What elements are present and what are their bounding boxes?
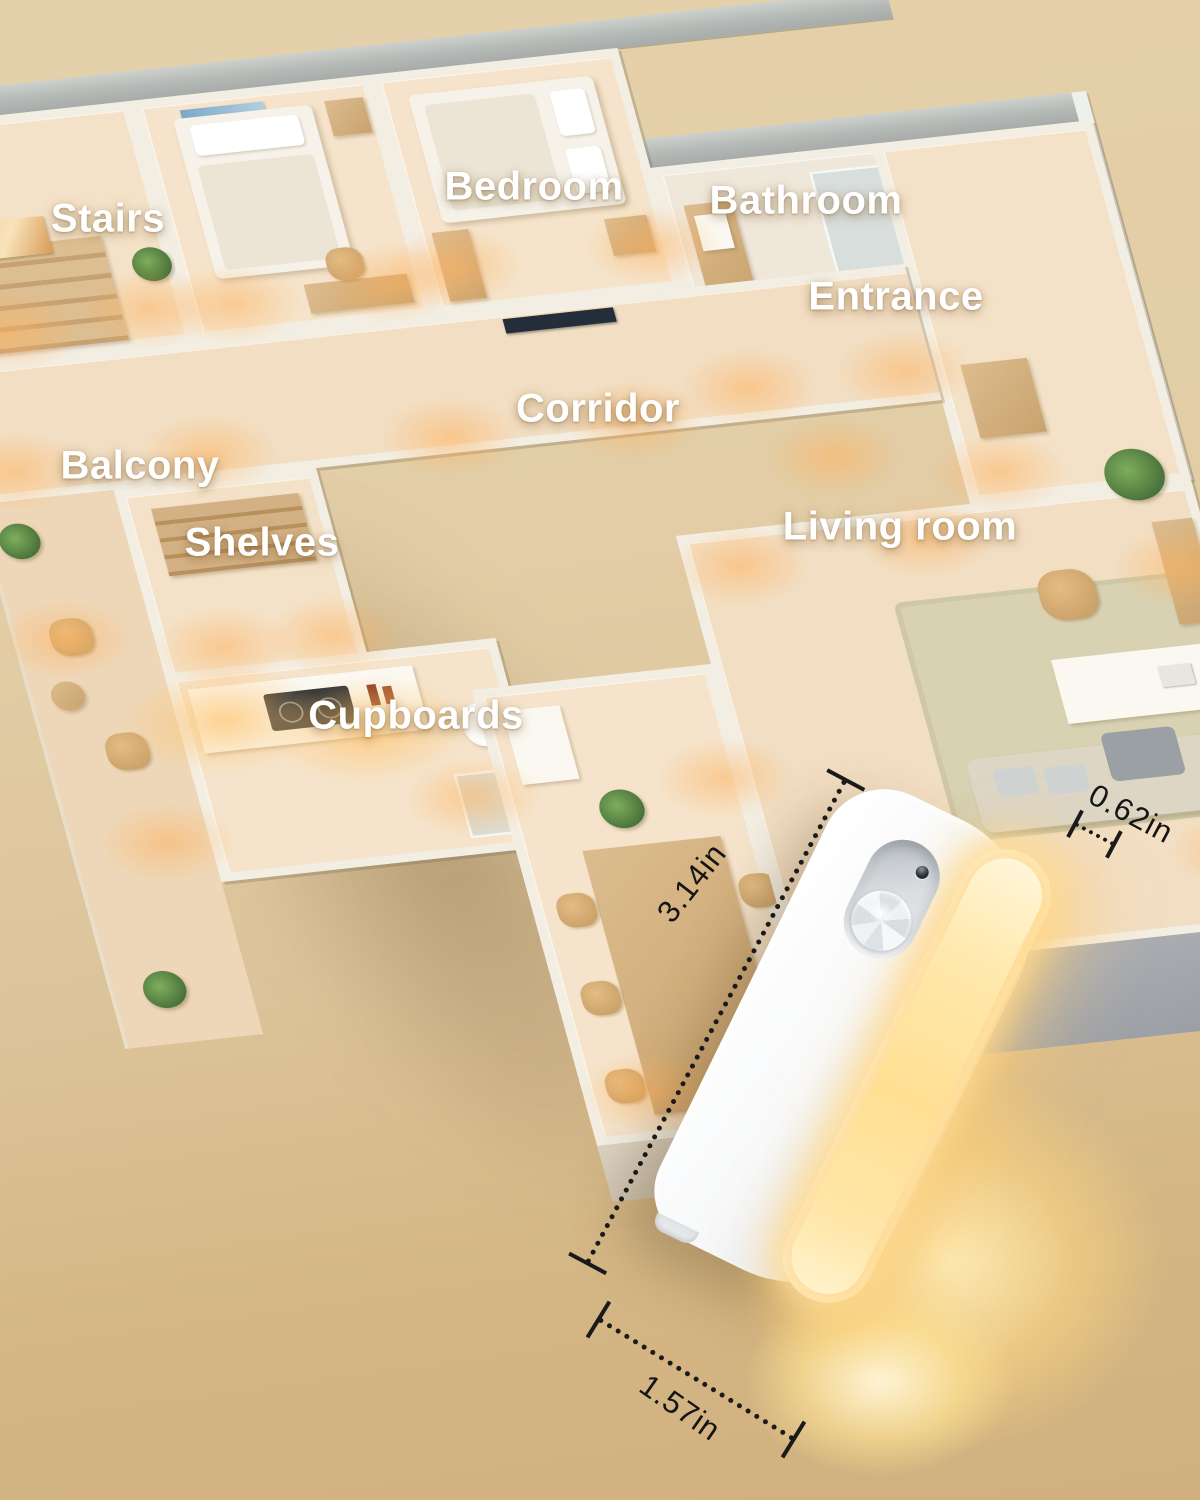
room-label-bathroom: Bathroom <box>710 179 903 224</box>
plant <box>0 522 45 562</box>
cushion <box>1043 764 1091 796</box>
nightstand <box>324 97 372 136</box>
room-label-balcony: Balcony <box>60 444 219 489</box>
light-sensor-dot <box>913 864 930 881</box>
gray-blanket <box>1100 726 1187 782</box>
dining-chair <box>577 979 625 1017</box>
pillow <box>189 114 306 156</box>
pir-motion-sensor-dome <box>841 881 921 961</box>
dining-chair <box>553 891 601 929</box>
dimension-tick <box>586 1301 611 1339</box>
plant <box>595 787 650 830</box>
plant <box>139 969 191 1010</box>
room-label-entrance: Entrance <box>808 275 983 320</box>
room-label-cupboards: Cupboards <box>308 694 524 739</box>
tv <box>502 307 616 333</box>
cushion <box>992 766 1040 798</box>
dome-highlight <box>865 898 898 929</box>
room-label-shelves: Shelves <box>185 521 340 566</box>
room-label-stairs: Stairs <box>51 197 165 242</box>
room-label-bedroom: Bedroom <box>444 165 623 210</box>
balcony-table <box>47 680 88 712</box>
magazine <box>1157 663 1196 687</box>
pillow <box>549 88 596 137</box>
blanket <box>197 154 342 271</box>
marketing-image: Stairs Bedroom Bathroom Entrance Corrido… <box>0 0 1200 1500</box>
room-label-living-room: Living room <box>783 505 1017 550</box>
room-label-corridor: Corridor <box>516 387 680 432</box>
floor-light-glow-core <box>700 1250 1060 1500</box>
